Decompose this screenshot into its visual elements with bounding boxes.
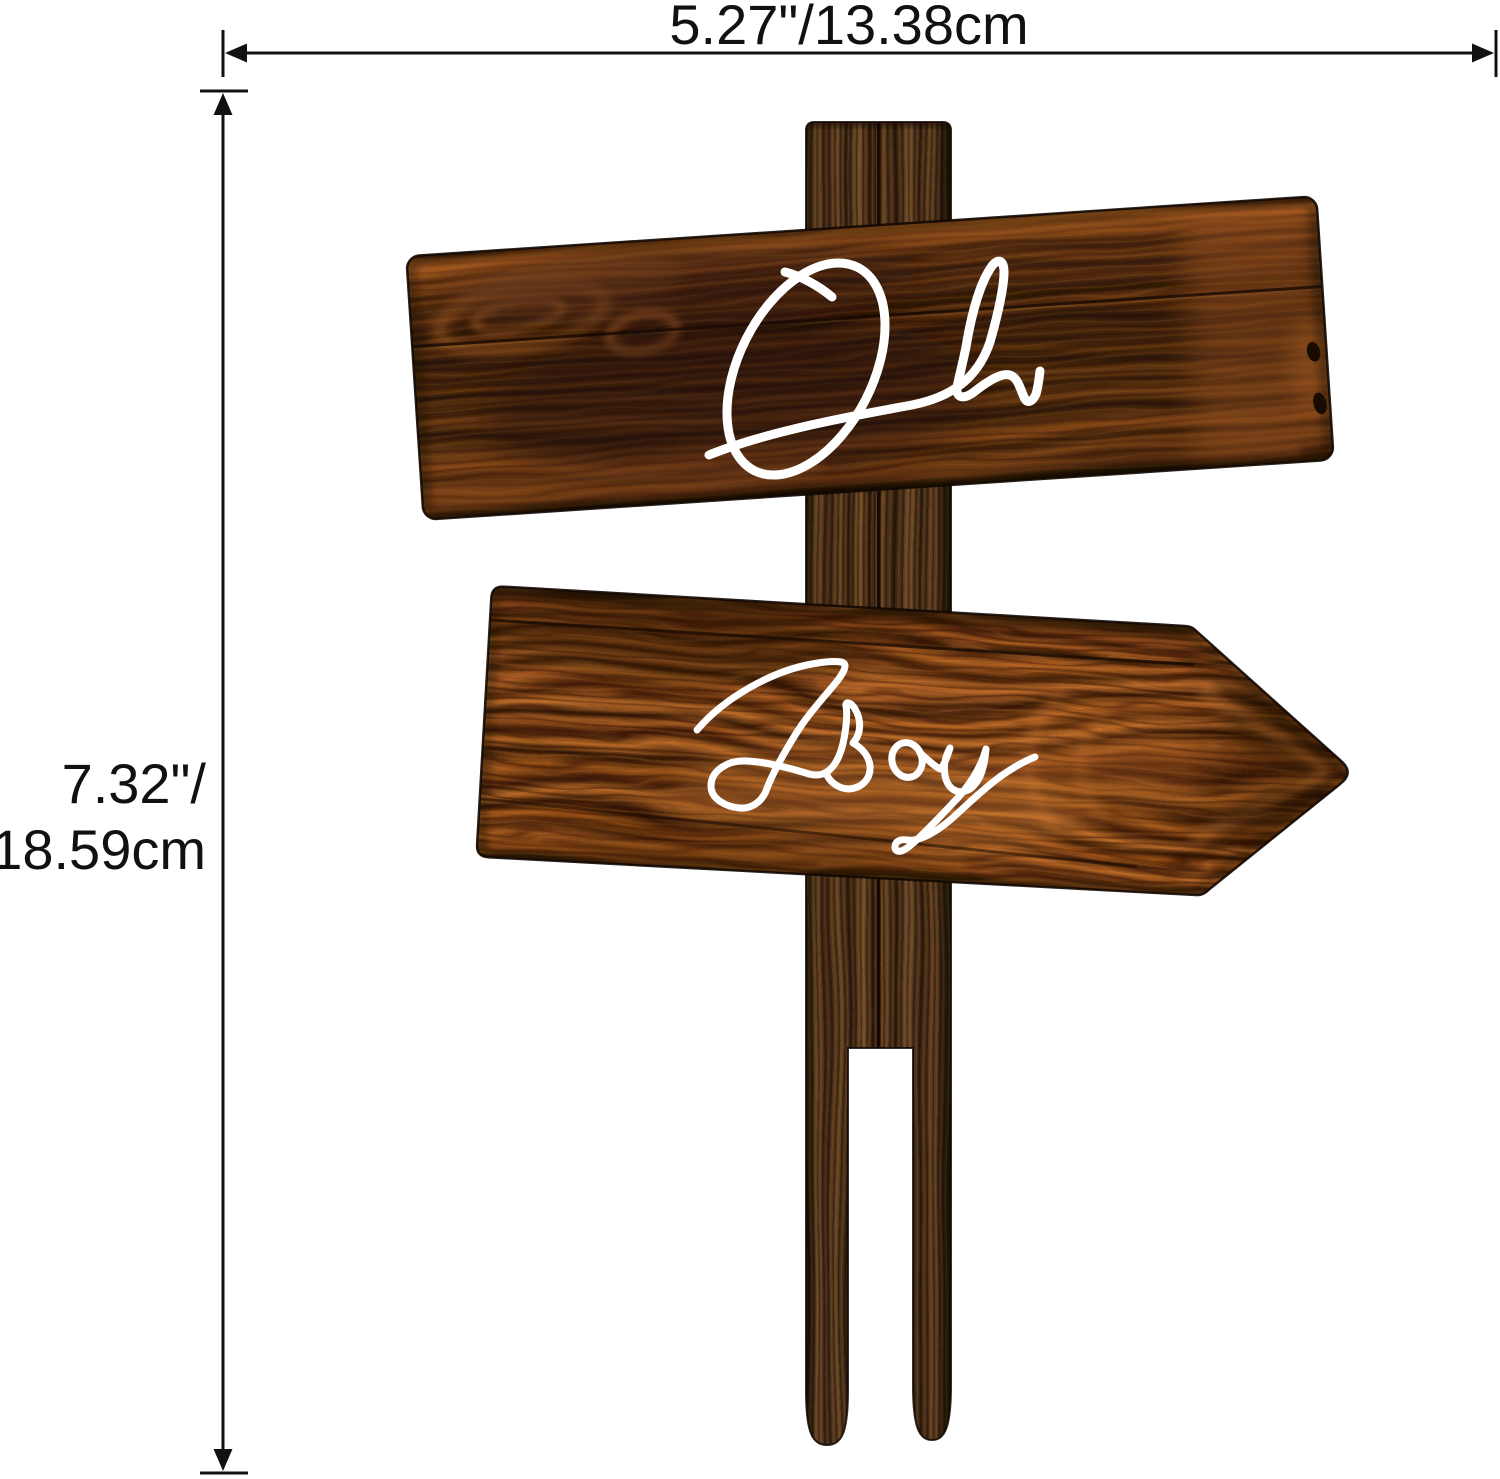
svg-text:7.32"/: 7.32"/ xyxy=(62,752,207,815)
svg-text:18.59cm: 18.59cm xyxy=(0,818,206,881)
svg-text:5.27"/13.38cm: 5.27"/13.38cm xyxy=(669,0,1028,56)
